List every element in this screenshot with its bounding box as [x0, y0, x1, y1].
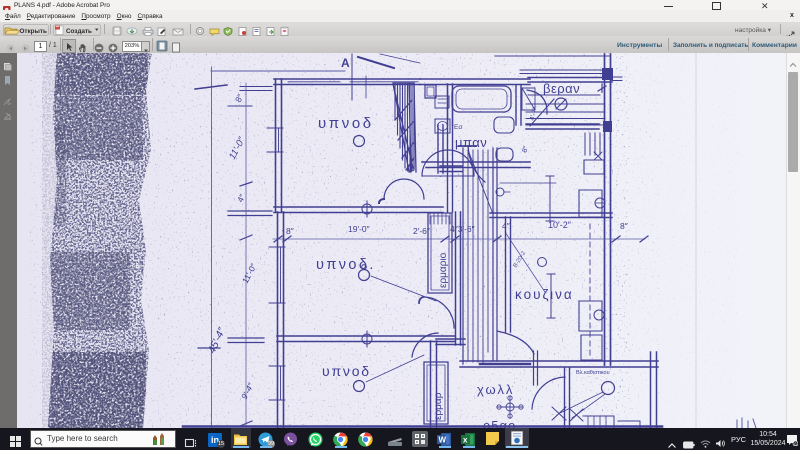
svg-text:βεραν: βεραν — [543, 81, 580, 96]
svg-text:8″: 8″ — [286, 226, 294, 236]
svg-text:κουζινα: κουζινα — [515, 287, 574, 302]
svg-text:χωλλ: χωλλ — [477, 382, 514, 397]
svg-text:υπνοδ: υπνοδ — [322, 363, 371, 379]
svg-text:Bλ.καθιστικου: Bλ.καθιστικου — [576, 370, 610, 376]
svg-text:Открыть: Открыть — [20, 28, 47, 35]
svg-text:A: A — [341, 56, 350, 70]
svg-text:Создать: Создать — [66, 28, 92, 35]
svg-text:19′-0″: 19′-0″ — [348, 224, 370, 234]
svg-text:ο5αο: ο5αο — [483, 418, 516, 428]
svg-text:υπνοδ: υπνοδ — [318, 115, 374, 132]
svg-text:μπαν: μπαν — [455, 135, 487, 150]
svg-text:Εσ: Εσ — [454, 124, 462, 131]
svg-text:ερμαρ: ερμαρ — [433, 392, 444, 420]
svg-text:x: x — [463, 436, 468, 445]
svg-text:4″3′-6″: 4″3′-6″ — [450, 224, 475, 234]
svg-text:ερμαριο: ερμαριο — [438, 252, 449, 288]
svg-text:8″: 8″ — [620, 221, 628, 231]
svg-text:W: W — [439, 436, 447, 445]
